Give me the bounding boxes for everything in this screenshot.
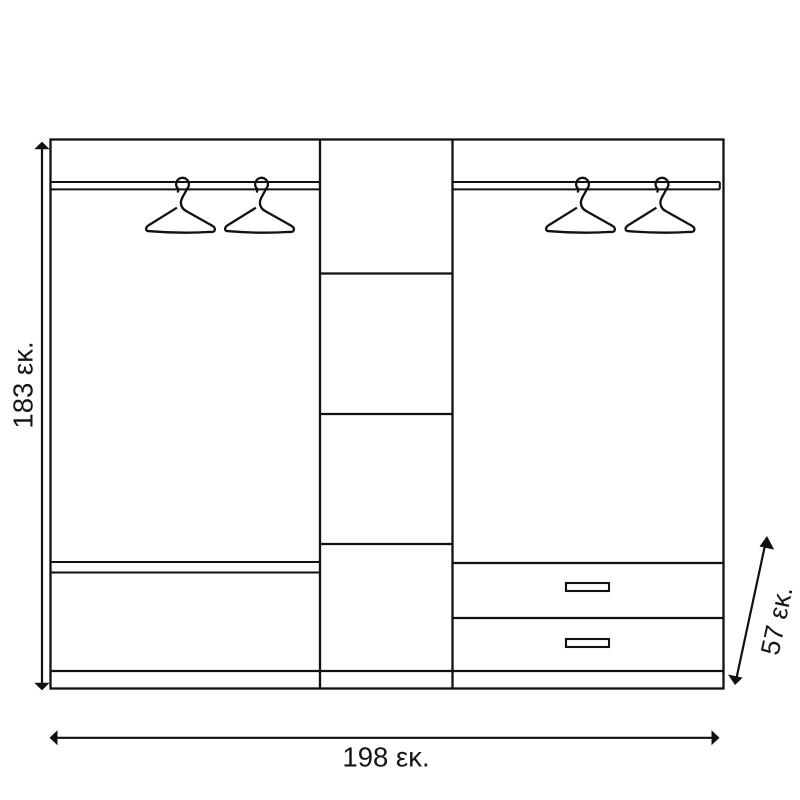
svg-text:198 εκ.: 198 εκ. — [342, 742, 429, 773]
svg-text:57 εκ.: 57 εκ. — [755, 584, 799, 658]
svg-text:183 εκ.: 183 εκ. — [8, 341, 39, 428]
